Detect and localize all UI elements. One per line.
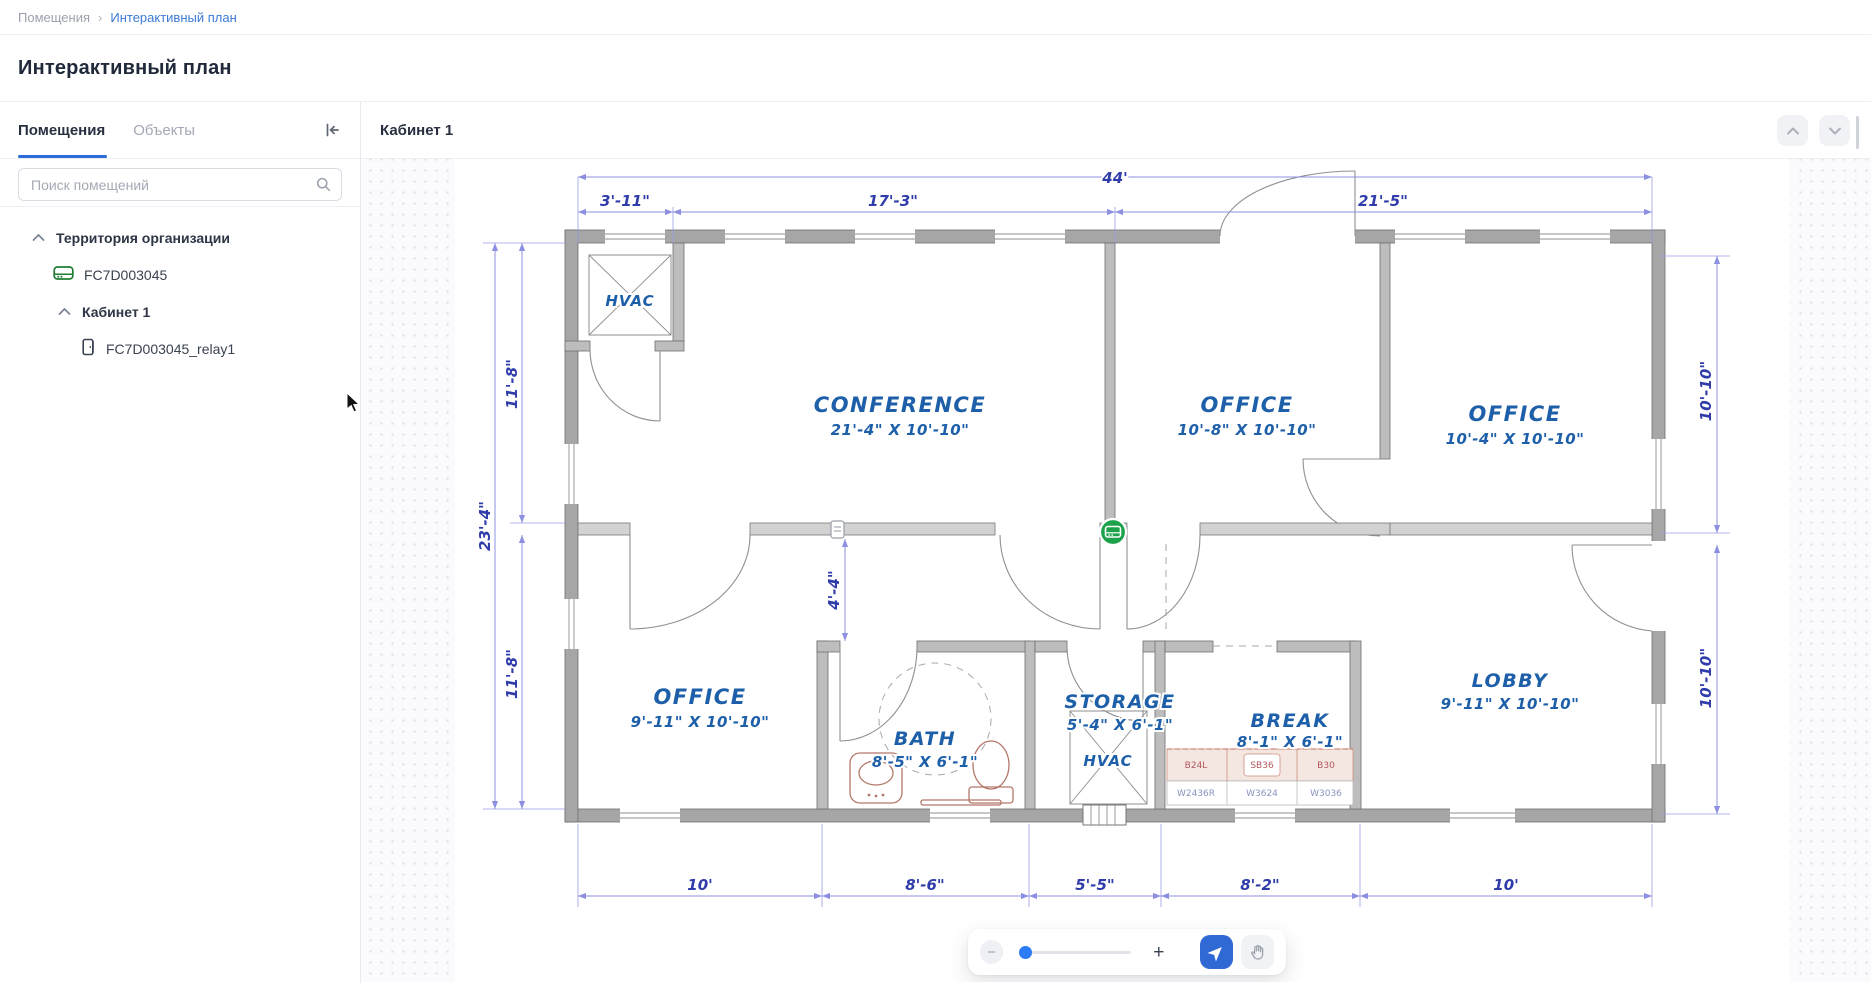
svg-text:11'-8": 11'-8" bbox=[503, 359, 521, 409]
sidebar: Помещения Объекты bbox=[0, 102, 361, 983]
svg-text:B30: B30 bbox=[1317, 761, 1335, 771]
svg-text:OFFICE: OFFICE bbox=[1200, 393, 1293, 417]
svg-text:STORAGE: STORAGE bbox=[1064, 691, 1175, 713]
search-input[interactable] bbox=[18, 168, 342, 201]
rooms-tree: Территория организации FC7D003045 bbox=[0, 207, 360, 367]
svg-text:10'-10": 10'-10" bbox=[1697, 648, 1715, 708]
svg-text:10'-10": 10'-10" bbox=[1697, 361, 1715, 421]
zoom-slider[interactable] bbox=[1019, 946, 1131, 959]
tree-item-room[interactable]: Кабинет 1 bbox=[0, 293, 360, 330]
title-bar: Интерактивный план bbox=[0, 35, 1871, 102]
svg-text:10'-8" X 10'-10": 10'-8" X 10'-10" bbox=[1178, 421, 1317, 439]
svg-text:8'-6": 8'-6" bbox=[905, 876, 945, 894]
svg-text:8'-2": 8'-2" bbox=[1240, 876, 1280, 894]
door-relay-icon bbox=[81, 338, 96, 359]
svg-text:9'-11" X 10'-10": 9'-11" X 10'-10" bbox=[1441, 695, 1580, 713]
floor-plan-sheet[interactable]: B24L SB36 B30 W2436R W3624 W3036 44' bbox=[455, 159, 1790, 982]
tab-objects[interactable]: Объекты bbox=[133, 102, 195, 158]
svg-text:HVAC: HVAC bbox=[605, 292, 654, 310]
chevron-up-icon[interactable] bbox=[30, 233, 46, 242]
svg-text:4'-4": 4'-4" bbox=[825, 570, 843, 611]
plan-room-title: Кабинет 1 bbox=[380, 122, 453, 139]
tree-item-label: FC7D003045 bbox=[84, 267, 167, 283]
svg-text:10': 10' bbox=[1493, 876, 1518, 894]
device-router-icon bbox=[53, 265, 74, 284]
chevron-up-icon[interactable] bbox=[56, 307, 72, 316]
scrollbar-thumb[interactable] bbox=[1856, 116, 1859, 149]
svg-text:BREAK: BREAK bbox=[1250, 710, 1329, 732]
tree-item-label: Кабинет 1 bbox=[82, 304, 150, 320]
svg-text:21'-5": 21'-5" bbox=[1358, 192, 1408, 210]
svg-text:10'-4" X 10'-10": 10'-4" X 10'-10" bbox=[1446, 430, 1585, 448]
svg-text:W2436R: W2436R bbox=[1177, 789, 1215, 799]
collapse-sidebar-button[interactable] bbox=[320, 118, 344, 142]
plan-header: Кабинет 1 bbox=[361, 102, 1871, 159]
tree-item-label: Территория организации bbox=[56, 230, 230, 246]
break-cabinets: B24L SB36 B30 W2436R W3624 W3036 bbox=[1167, 749, 1353, 805]
breadcrumb-current[interactable]: Интерактивный план bbox=[110, 10, 236, 25]
wall-sensor-icon[interactable] bbox=[831, 521, 844, 538]
breadcrumb-root[interactable]: Помещения bbox=[18, 10, 90, 25]
zoom-slider-thumb[interactable] bbox=[1019, 946, 1032, 959]
svg-text:W3036: W3036 bbox=[1310, 789, 1342, 799]
tree-item-label: FC7D003045_relay1 bbox=[106, 341, 235, 357]
tab-rooms[interactable]: Помещения bbox=[18, 102, 105, 158]
svg-text:5'-5": 5'-5" bbox=[1075, 876, 1115, 894]
pan-tool-button[interactable] bbox=[1241, 935, 1274, 969]
zoom-in-button[interactable]: + bbox=[1153, 943, 1164, 962]
breadcrumb: Помещения › Интерактивный план bbox=[0, 0, 1871, 35]
search-icon bbox=[315, 176, 332, 198]
storage-vent bbox=[1083, 805, 1126, 825]
hand-icon bbox=[1248, 943, 1267, 962]
svg-text:5'-4" X 6'-1": 5'-4" X 6'-1" bbox=[1067, 716, 1173, 734]
plan-canvas[interactable]: B24L SB36 B30 W2436R W3624 W3036 44' bbox=[361, 159, 1871, 982]
svg-text:21'-4" X 10'-10": 21'-4" X 10'-10" bbox=[831, 421, 970, 439]
plan-panel: Кабинет 1 bbox=[361, 102, 1871, 983]
tree-item-territory[interactable]: Территория организации bbox=[0, 219, 360, 256]
prev-room-button[interactable] bbox=[1777, 115, 1808, 146]
zoom-toolbar: − + bbox=[968, 929, 1286, 975]
svg-text:10': 10' bbox=[687, 876, 712, 894]
sidebar-tabs: Помещения Объекты bbox=[0, 102, 360, 159]
chevron-down-icon bbox=[1828, 126, 1842, 136]
entry-door-top bbox=[1220, 171, 1355, 244]
svg-text:8'-1" X 6'-1": 8'-1" X 6'-1" bbox=[1237, 733, 1343, 751]
zoom-out-button[interactable]: − bbox=[980, 940, 1003, 964]
svg-text:W3624: W3624 bbox=[1246, 789, 1278, 799]
tree-item-device[interactable]: FC7D003045 bbox=[0, 256, 360, 293]
svg-text:LOBBY: LOBBY bbox=[1472, 670, 1550, 692]
svg-text:8'-5" X 6'-1": 8'-5" X 6'-1" bbox=[872, 753, 978, 771]
cursor-arrow-icon bbox=[1207, 943, 1226, 962]
svg-text:OFFICE: OFFICE bbox=[653, 685, 746, 709]
svg-text:BATH: BATH bbox=[894, 728, 956, 750]
chevron-up-icon bbox=[1786, 126, 1800, 136]
svg-text:B24L: B24L bbox=[1185, 761, 1208, 771]
svg-text:3'-11": 3'-11" bbox=[600, 192, 650, 210]
relay-marker[interactable] bbox=[1100, 519, 1126, 545]
zoom-slider-track[interactable] bbox=[1019, 951, 1131, 954]
floor-plan-drawing: B24L SB36 B30 W2436R W3624 W3036 44' bbox=[455, 159, 1790, 982]
search-row bbox=[0, 159, 360, 207]
svg-text:HVAC: HVAC bbox=[1083, 752, 1132, 770]
svg-text:11'-8": 11'-8" bbox=[503, 649, 521, 699]
svg-text:OFFICE: OFFICE bbox=[1468, 402, 1561, 426]
svg-text:9'-11" X 10'-10": 9'-11" X 10'-10" bbox=[631, 713, 770, 731]
page-title: Интерактивный план bbox=[18, 57, 232, 80]
svg-text:17'-3": 17'-3" bbox=[868, 192, 918, 210]
app-window: Помещения › Интерактивный план Интеракти… bbox=[0, 0, 1871, 983]
svg-text:SB36: SB36 bbox=[1250, 761, 1274, 771]
tree-item-relay[interactable]: FC7D003045_relay1 bbox=[0, 330, 360, 367]
svg-text:CONFERENCE: CONFERENCE bbox=[814, 393, 986, 417]
svg-text:44': 44' bbox=[1101, 169, 1127, 187]
breadcrumb-separator-icon: › bbox=[98, 10, 102, 25]
next-room-button[interactable] bbox=[1819, 115, 1850, 146]
svg-text:23'-4": 23'-4" bbox=[476, 501, 494, 551]
select-tool-button[interactable] bbox=[1200, 935, 1233, 969]
collapse-left-icon bbox=[323, 121, 341, 139]
